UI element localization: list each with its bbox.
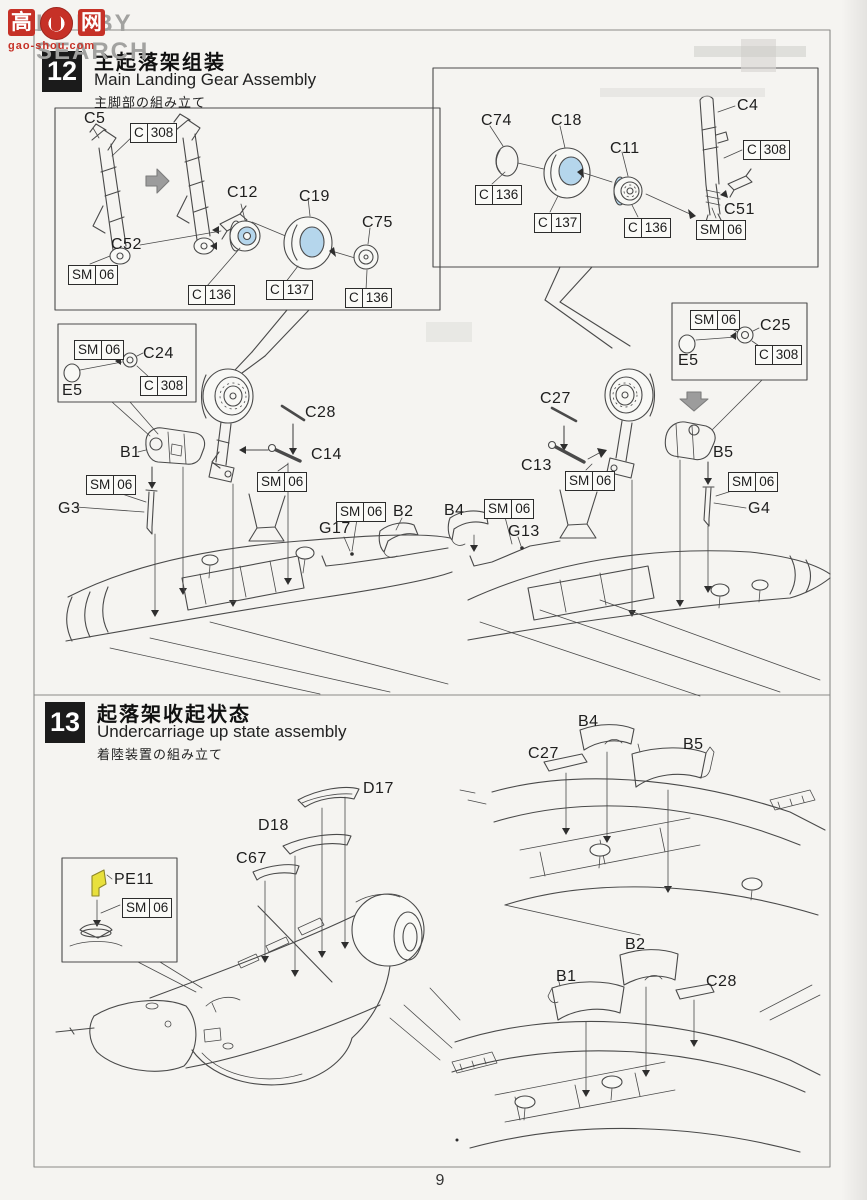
- callout-sm06: SM06: [336, 502, 386, 522]
- part-label-d18: D18: [258, 817, 289, 835]
- part-label-b2: B2: [393, 503, 414, 521]
- watermark-logo-left: 高: [8, 9, 35, 36]
- callout-prefix: SM: [87, 476, 113, 494]
- part-label-c19: C19: [299, 188, 330, 206]
- callout-sm06: SM06: [484, 499, 534, 519]
- callout-c308: C308: [755, 345, 802, 365]
- part-label-b1: B1: [120, 444, 141, 462]
- callout-prefix: SM: [691, 311, 717, 329]
- callout-number: 06: [511, 500, 533, 518]
- part-label-c12: C12: [227, 184, 258, 202]
- callout-number: 06: [592, 472, 614, 490]
- part-label-c24: C24: [143, 345, 174, 363]
- step12-title-en: Main Landing Gear Assembly: [94, 70, 316, 90]
- callout-number: 136: [362, 289, 392, 307]
- callout-prefix: C: [131, 124, 147, 142]
- step13-wing-top-right: [460, 725, 825, 935]
- callout-number: 06: [95, 266, 117, 284]
- part-label-b4: B4: [578, 713, 599, 731]
- page-number: 9: [420, 1172, 460, 1190]
- part-label-c27: C27: [540, 390, 571, 408]
- callout-number: 136: [492, 186, 522, 204]
- part-label-e5: E5: [678, 352, 699, 370]
- part-label-b2: B2: [625, 936, 646, 954]
- bleedthrough-ghost: [694, 46, 806, 57]
- part-label-e5: E5: [62, 382, 83, 400]
- callout-prefix: SM: [69, 266, 95, 284]
- callout-c136: C136: [188, 285, 235, 305]
- part-label-c5: C5: [84, 110, 105, 128]
- callout-c136: C136: [475, 185, 522, 205]
- step12-inset-right: [433, 68, 818, 348]
- callout-c136: C136: [345, 288, 392, 308]
- callout-sm06: SM06: [257, 472, 307, 492]
- part-label-c67: C67: [236, 850, 267, 868]
- part-label-g3: G3: [58, 500, 80, 518]
- callout-sm06: SM06: [690, 310, 740, 330]
- callout-c308: C308: [743, 140, 790, 160]
- callout-prefix: C: [267, 281, 283, 299]
- callout-number: 06: [755, 473, 777, 491]
- part-label-b5: B5: [713, 444, 734, 462]
- callout-prefix: SM: [697, 221, 723, 239]
- part-label-g4: G4: [748, 500, 770, 518]
- callout-sm06: SM06: [86, 475, 136, 495]
- step13-number-box: 13: [45, 702, 85, 743]
- callout-sm06: SM06: [696, 220, 746, 240]
- step13-wing-bottom-right: [452, 950, 820, 1152]
- callout-number: 06: [363, 503, 385, 521]
- step13-title-en: Undercarriage up state assembly: [97, 722, 346, 742]
- callout-c308: C308: [130, 123, 177, 143]
- callout-prefix: C: [189, 286, 205, 304]
- callout-number: 136: [641, 219, 671, 237]
- part-label-c18: C18: [551, 112, 582, 130]
- callout-c308: C308: [140, 376, 187, 396]
- callout-number: 06: [149, 899, 171, 917]
- callout-sm06: SM06: [74, 340, 124, 360]
- part-label-c51: C51: [724, 201, 755, 219]
- part-label-c13: C13: [521, 457, 552, 475]
- bleedthrough-ghost: [600, 88, 765, 97]
- step12-main-left: [66, 369, 452, 694]
- callout-number: 137: [283, 281, 313, 299]
- step12-title-jp: 主脚部の組み立て: [94, 92, 206, 111]
- step13-title-jp: 着陸装置の組み立て: [97, 744, 223, 763]
- instruction-sheet-page: HOBBY SEARCH 高 网 gao-shou.com 12 主起落架组装 …: [0, 0, 867, 1200]
- callout-sm06: SM06: [565, 471, 615, 491]
- part-label-c28: C28: [706, 973, 737, 991]
- step12-main-right: [448, 369, 830, 696]
- callout-number: 308: [157, 377, 187, 395]
- watermark-logo-right: 网: [78, 9, 105, 36]
- callout-prefix: C: [141, 377, 157, 395]
- part-label-c25: C25: [760, 317, 791, 335]
- callout-prefix: C: [535, 214, 551, 232]
- part-label-c14: C14: [311, 446, 342, 464]
- callout-number: 137: [551, 214, 581, 232]
- callout-prefix: SM: [258, 473, 284, 491]
- part-label-g13: G13: [508, 523, 540, 541]
- part-label-c4: C4: [737, 97, 758, 115]
- callout-prefix: C: [346, 289, 362, 307]
- callout-sm06: SM06: [122, 898, 172, 918]
- watermark-site-url: gao-shou.com: [8, 40, 95, 52]
- callout-prefix: C: [756, 346, 772, 364]
- part-label-c75: C75: [362, 214, 393, 232]
- callout-number: 06: [717, 311, 739, 329]
- callout-c137: C137: [534, 213, 581, 233]
- callout-prefix: C: [625, 219, 641, 237]
- callout-number: 308: [772, 346, 802, 364]
- part-label-c28: C28: [305, 404, 336, 422]
- callout-number: 06: [101, 341, 123, 359]
- part-label-c52: C52: [111, 236, 142, 254]
- part-label-c27: C27: [528, 745, 559, 763]
- part-label-b4: B4: [444, 502, 465, 520]
- part-label-b1: B1: [556, 968, 577, 986]
- part-label-c11: C11: [610, 140, 640, 158]
- callout-prefix: SM: [123, 899, 149, 917]
- line-art-svg: [0, 0, 867, 1200]
- callout-number: 06: [113, 476, 135, 494]
- callout-prefix: SM: [75, 341, 101, 359]
- callout-number: 308: [147, 124, 177, 142]
- watermark-thumb-icon: [40, 7, 73, 40]
- callout-number: 06: [284, 473, 306, 491]
- callout-prefix: SM: [337, 503, 363, 521]
- part-label-g17: G17: [319, 520, 351, 538]
- callout-sm06: SM06: [728, 472, 778, 492]
- callout-c137: C137: [266, 280, 313, 300]
- bleedthrough-ghost: [426, 322, 472, 342]
- part-label-pe11: PE11: [114, 871, 154, 889]
- watermark: HOBBY SEARCH 高 网 gao-shou.com: [6, 4, 236, 54]
- callout-prefix: SM: [485, 500, 511, 518]
- callout-number: 06: [723, 221, 745, 239]
- part-label-c74: C74: [481, 112, 512, 130]
- callout-number: 308: [760, 141, 790, 159]
- callout-prefix: SM: [729, 473, 755, 491]
- callout-prefix: C: [476, 186, 492, 204]
- callout-sm06: SM06: [68, 265, 118, 285]
- part-label-d17: D17: [363, 780, 394, 798]
- callout-prefix: SM: [566, 472, 592, 490]
- callout-c136: C136: [624, 218, 671, 238]
- part-label-b5: B5: [683, 736, 704, 754]
- callout-number: 136: [205, 286, 235, 304]
- callout-prefix: C: [744, 141, 760, 159]
